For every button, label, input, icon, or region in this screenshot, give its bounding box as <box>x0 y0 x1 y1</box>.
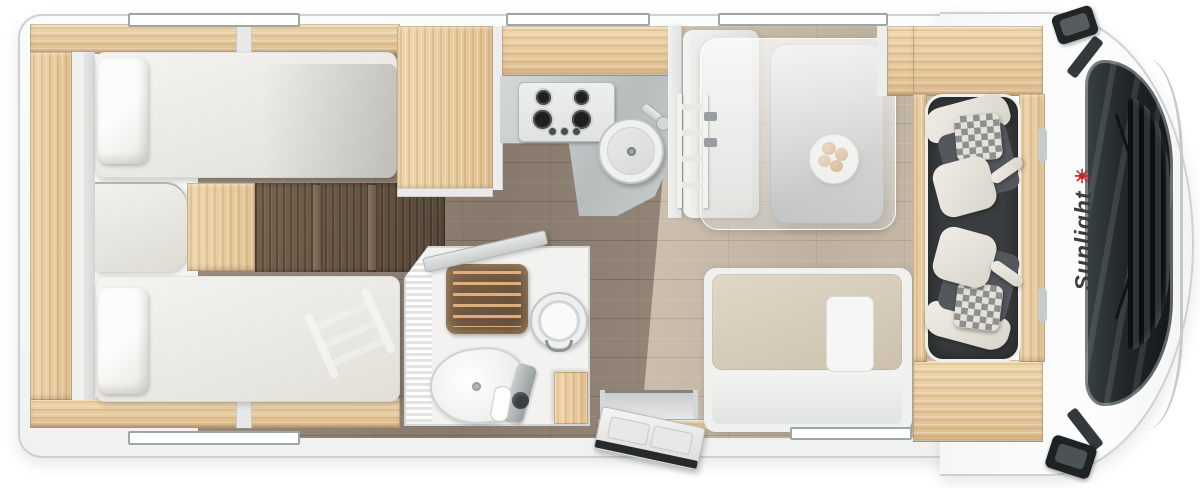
cab-door-handle <box>1038 128 1047 162</box>
bathroom-ribbed-wall <box>406 260 432 422</box>
hob-burner <box>574 90 589 105</box>
cab-wood-bottom <box>913 360 1043 442</box>
bed-ladder <box>674 94 718 210</box>
mixer-knob <box>512 392 529 409</box>
cab-wood-top <box>913 26 1043 96</box>
brand-logo-text: Sunlight <box>1070 191 1097 291</box>
toilet-hinge <box>545 340 573 352</box>
wardrobe-lip <box>397 188 493 197</box>
motorhome-floorplan: Sunlight ☀ <box>0 0 1200 488</box>
door-pocket <box>607 416 651 446</box>
center-cushion <box>95 182 187 272</box>
toilet-seat <box>538 300 580 342</box>
bathroom <box>404 246 590 426</box>
center-wood-platform <box>187 183 255 271</box>
bathroom-corner-cabinet <box>554 372 588 424</box>
door-pocket <box>650 425 694 455</box>
bed-top-pillow <box>98 58 148 164</box>
window-slot-top-kitchen <box>506 13 650 26</box>
ladder-hook <box>704 112 717 121</box>
kitchen-overhead-locker <box>502 26 670 76</box>
hob-knob <box>573 128 580 135</box>
bench-seat-panel <box>826 296 874 372</box>
cab-door-handle <box>1038 288 1047 322</box>
locker-divider-bottom <box>236 398 252 428</box>
headboard-wall <box>84 52 95 400</box>
bed-top-shadow <box>262 64 397 178</box>
overhead-locker-top <box>30 24 400 54</box>
hob-burner <box>572 110 591 129</box>
basin-drain <box>472 382 481 391</box>
checkered-cushion <box>953 281 1004 332</box>
bed-bottom-pillow <box>98 288 148 394</box>
window-slot-bottom-dinette <box>790 427 912 440</box>
checkered-cushion <box>953 113 1003 163</box>
locker-divider-top <box>236 24 252 54</box>
sun-icon: ☀ <box>1072 167 1095 184</box>
window-slot-top-dinette <box>718 13 888 26</box>
ladder-hook <box>704 138 717 147</box>
window-slot-bottom-rear <box>128 431 300 445</box>
brand-logo: Sunlight ☀ <box>1069 154 1097 304</box>
shower-teak-grate <box>453 271 521 327</box>
step-divider <box>368 185 376 270</box>
hob-burner <box>536 90 551 105</box>
travel-bench <box>704 268 912 432</box>
cab-wood-ext <box>887 26 914 96</box>
wardrobe <box>397 26 493 190</box>
hob-knob <box>561 128 568 135</box>
drop-down-bed-overlay <box>700 38 896 230</box>
overhead-locker-bottom <box>30 398 400 428</box>
step-divider <box>313 185 321 270</box>
bench-backrest <box>712 372 902 424</box>
window-slot-top-rear <box>128 13 300 27</box>
hob-knob <box>549 128 556 135</box>
hob-burner <box>533 110 552 129</box>
rear-side-shelf <box>30 52 72 400</box>
sink-drain <box>627 147 636 156</box>
